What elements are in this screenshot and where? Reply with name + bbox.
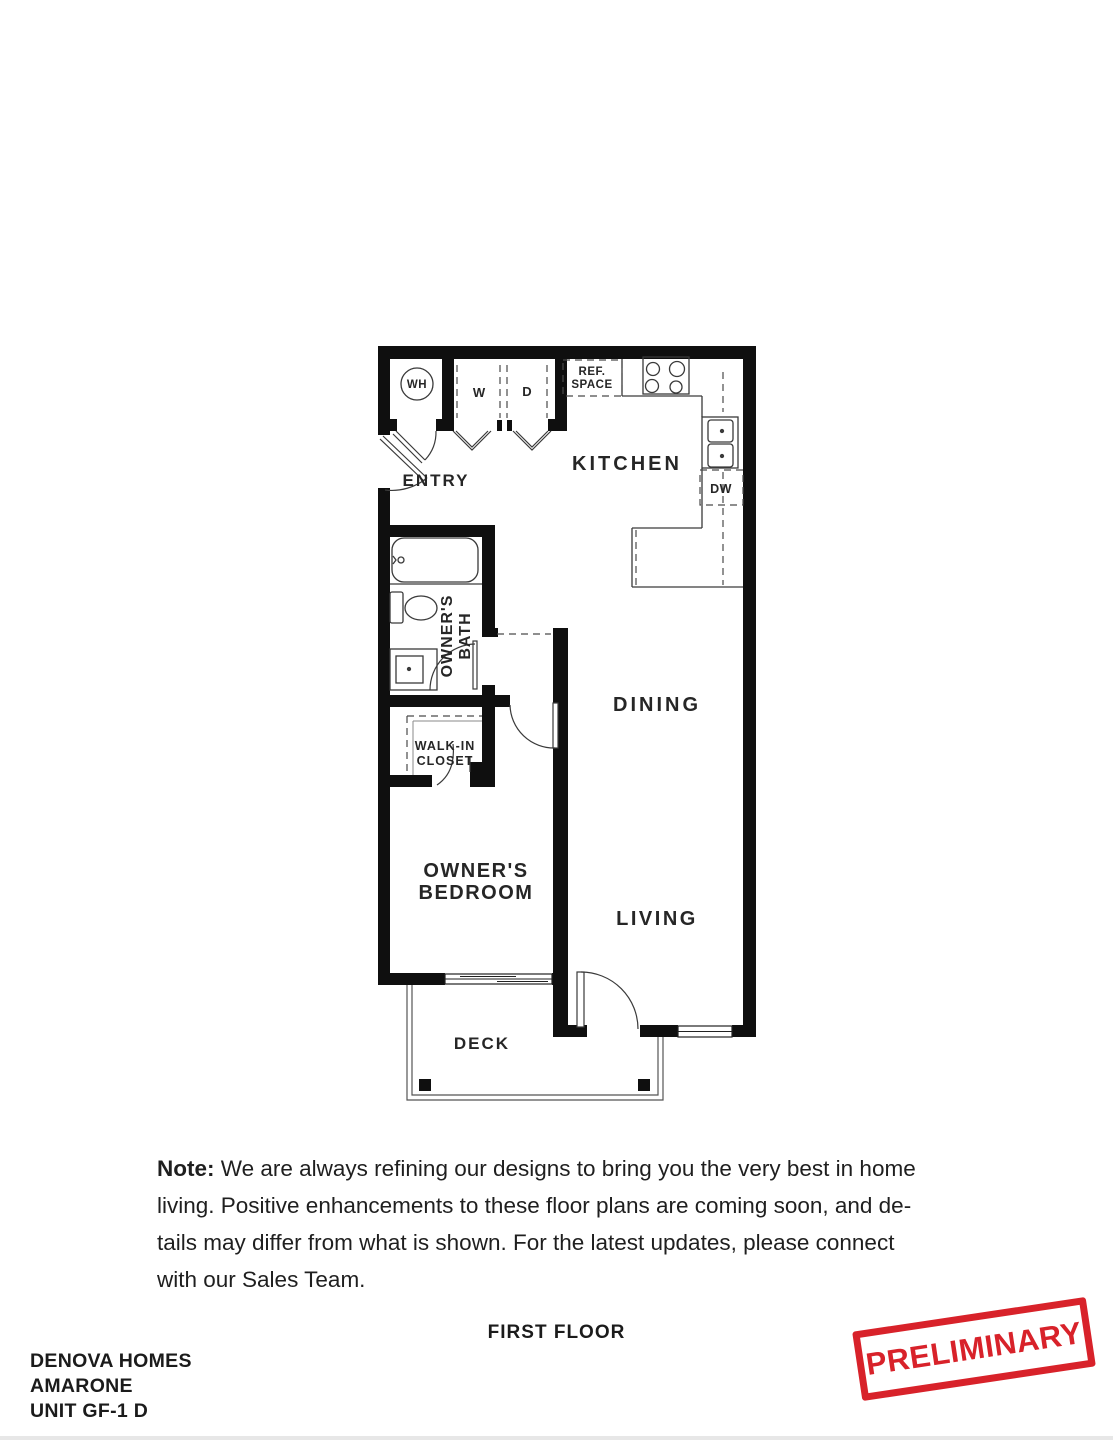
dryer-label: D — [522, 384, 531, 399]
note-label: Note: — [157, 1156, 215, 1181]
note-line-3: tails may differ from what is shown. For… — [157, 1224, 916, 1261]
wd-center-jamb-right — [507, 420, 512, 431]
deck-post-left — [419, 1079, 431, 1091]
wd-center-jamb-left — [497, 420, 502, 431]
wh-door-jamb-right — [436, 419, 447, 431]
wall-living-bottom-right — [732, 1025, 756, 1037]
toilet — [390, 592, 437, 623]
wall-right — [743, 346, 756, 1037]
wall-closet-bottom — [378, 775, 432, 787]
wall-bedroom-bottom-right — [552, 973, 568, 985]
community-name: AMARONE — [30, 1374, 192, 1399]
wall-bedroom-bottom-left — [378, 973, 445, 985]
bifold-tracks — [457, 365, 547, 418]
bedroom-window — [445, 974, 552, 984]
wh-door-jamb-left — [387, 419, 397, 431]
wall-left-lower — [378, 488, 390, 983]
bedroom-label-line1: OWNER'S — [423, 860, 528, 882]
closet-label-line2: CLOSET — [417, 754, 474, 768]
wall-bath-top — [378, 525, 493, 537]
bath-label-line2: BATH — [457, 612, 474, 659]
windows — [445, 974, 732, 1037]
wall-wh-wd-separator — [442, 346, 454, 431]
deck-label: DECK — [454, 1034, 510, 1053]
bath-label: OWNER'S BATH — [439, 595, 474, 678]
entry-label: ENTRY — [403, 471, 470, 490]
bath-label-line1: OWNER'S — [439, 595, 456, 678]
patio-door — [577, 972, 638, 1029]
bathtub — [392, 538, 478, 582]
dryer-door-jamb — [548, 419, 560, 431]
dining-label: DINING — [613, 694, 701, 716]
kitchen-label: KITCHEN — [572, 453, 682, 475]
cooktop — [643, 357, 689, 394]
walls — [378, 346, 756, 1037]
living-window — [678, 1026, 732, 1037]
builder-block: DENOVA HOMES AMARONE UNIT GF-1 D — [30, 1349, 192, 1424]
deck-structure — [407, 985, 663, 1100]
ref-space-label-line2: SPACE — [571, 379, 612, 391]
washer-bifold-door — [453, 431, 491, 450]
wall-dryer-right — [555, 346, 567, 431]
wall-living-bottom-mid — [640, 1025, 678, 1037]
kitchen-fixtures — [457, 357, 743, 634]
kitchen-sink — [702, 417, 738, 468]
builder-name: DENOVA HOMES — [30, 1349, 192, 1374]
washer-label: W — [473, 385, 486, 400]
water-heater-label: WH — [407, 379, 427, 391]
bedroom-label-line2: BEDROOM — [419, 882, 534, 904]
dashed-details — [457, 360, 743, 634]
note-line-1: Note: We are always refining our designs… — [157, 1150, 916, 1187]
living-label: LIVING — [616, 908, 698, 930]
deck-post-right — [638, 1079, 650, 1091]
dryer-bifold-door — [513, 431, 551, 450]
disclaimer-note: Note: We are always refining our designs… — [157, 1150, 916, 1298]
floor-plan-page: WH W D REF. SPACE DW ENTRY KITCHEN DININ… — [0, 0, 1113, 1440]
page-edge — [0, 1436, 1113, 1440]
bedroom-door — [510, 703, 558, 748]
doors — [380, 431, 638, 1029]
closet-label-line1: WALK-IN — [415, 739, 475, 753]
note-line-4: with our Sales Team. — [157, 1261, 916, 1298]
unit-name: UNIT GF-1 D — [30, 1399, 192, 1424]
wall-bath-right — [482, 525, 495, 628]
ref-space-label-line1: REF. — [579, 366, 606, 378]
bath-wall-jamb — [482, 628, 498, 637]
closet-door-jamb — [470, 762, 495, 787]
dishwasher-label: DW — [710, 482, 732, 496]
note-line-2: living. Positive enhancements to these f… — [157, 1187, 916, 1224]
